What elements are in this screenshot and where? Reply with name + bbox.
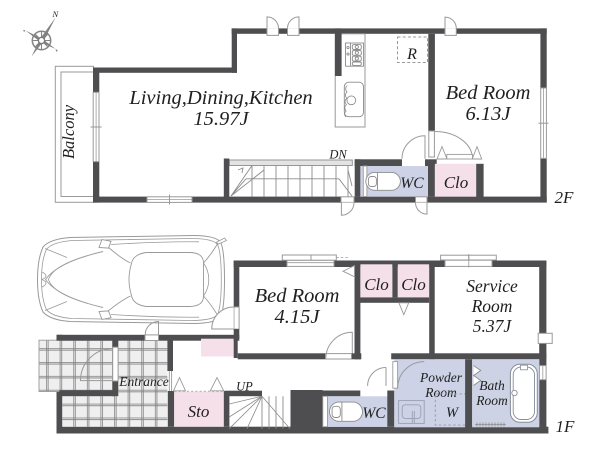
svg-text:2F: 2F — [555, 188, 575, 207]
svg-text:Clo: Clo — [401, 275, 426, 294]
svg-text:Clo: Clo — [444, 173, 469, 192]
svg-text:Powder: Powder — [419, 370, 463, 385]
svg-text:6.13J: 6.13J — [466, 103, 512, 125]
svg-text:5.37J: 5.37J — [473, 316, 513, 336]
svg-text:Room: Room — [471, 296, 513, 316]
svg-text:Service: Service — [466, 276, 518, 296]
svg-text:Clo: Clo — [364, 275, 389, 294]
svg-text:Room: Room — [475, 393, 508, 408]
svg-text:WC: WC — [400, 175, 424, 192]
svg-text:Sto: Sto — [188, 402, 210, 421]
svg-text:WC: WC — [362, 405, 386, 422]
svg-text:Bed Room: Bed Room — [446, 82, 531, 104]
svg-text:W: W — [446, 405, 460, 421]
svg-text:Balcony: Balcony — [59, 104, 78, 159]
svg-text:Room: Room — [424, 385, 457, 400]
svg-text:Bath: Bath — [479, 378, 505, 393]
svg-text:R: R — [406, 46, 417, 63]
svg-text:DN: DN — [328, 148, 347, 162]
svg-text:Living,Dining,Kitchen: Living,Dining,Kitchen — [128, 87, 312, 109]
svg-text:15.97J: 15.97J — [193, 108, 249, 130]
svg-text:Entrance: Entrance — [118, 374, 169, 389]
svg-text:1F: 1F — [556, 417, 576, 436]
svg-text:4.15J: 4.15J — [275, 306, 321, 328]
svg-text:Bed Room: Bed Room — [255, 285, 340, 307]
